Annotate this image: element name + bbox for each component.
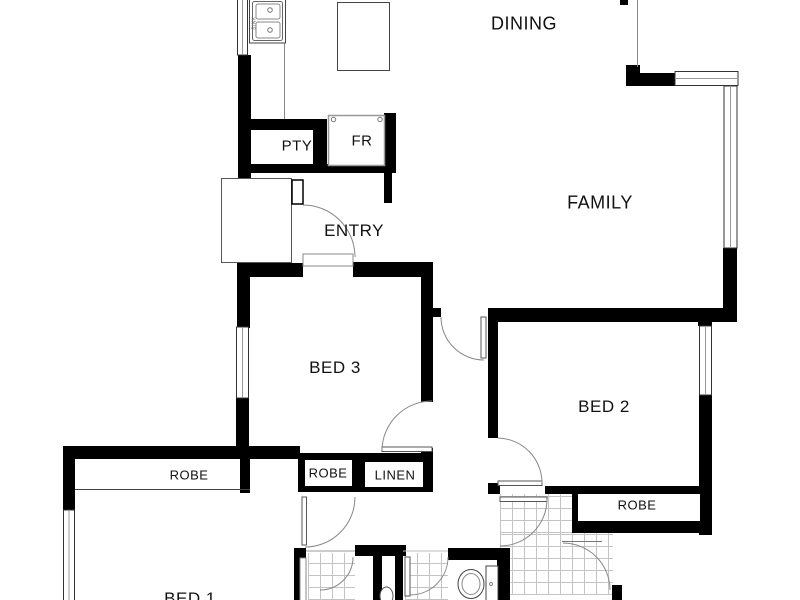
kitchen-island: [338, 3, 390, 71]
window: [300, 558, 306, 600]
window: [238, 0, 248, 55]
room-label-fridge: FR: [352, 133, 373, 150]
room-label-entry: ENTRY: [324, 221, 384, 241]
porch-outline: [222, 179, 292, 263]
room-label-robe-bed1: ROBE: [170, 468, 209, 483]
room-label-linen: LINEN: [375, 468, 416, 483]
window: [724, 86, 737, 248]
room-label-robe-hall: ROBE: [309, 466, 348, 481]
window: [237, 327, 249, 398]
linework-layer: SINK: [0, 0, 800, 600]
room-label-dining: DINING: [491, 14, 557, 35]
window: [64, 510, 75, 600]
room-label-bed2: BED 2: [578, 397, 630, 417]
entry-door-panel: [292, 180, 303, 204]
room-label-bed1: BED 1: [164, 589, 216, 600]
kitchen-sink: SINK: [250, 0, 286, 43]
room-label-family: FAMILY: [567, 193, 633, 214]
basin: [380, 587, 393, 600]
floorplan-canvas: SINK: [0, 0, 800, 600]
front-door-threshold: [303, 254, 353, 266]
room-label-robe-bed2: ROBE: [618, 498, 657, 513]
sink-label: SINK: [252, 16, 258, 30]
room-label-pantry: PTY: [282, 138, 313, 155]
window: [675, 72, 738, 86]
room-label-bed3: BED 3: [309, 358, 361, 378]
toilet: [458, 566, 498, 600]
window: [700, 326, 712, 395]
